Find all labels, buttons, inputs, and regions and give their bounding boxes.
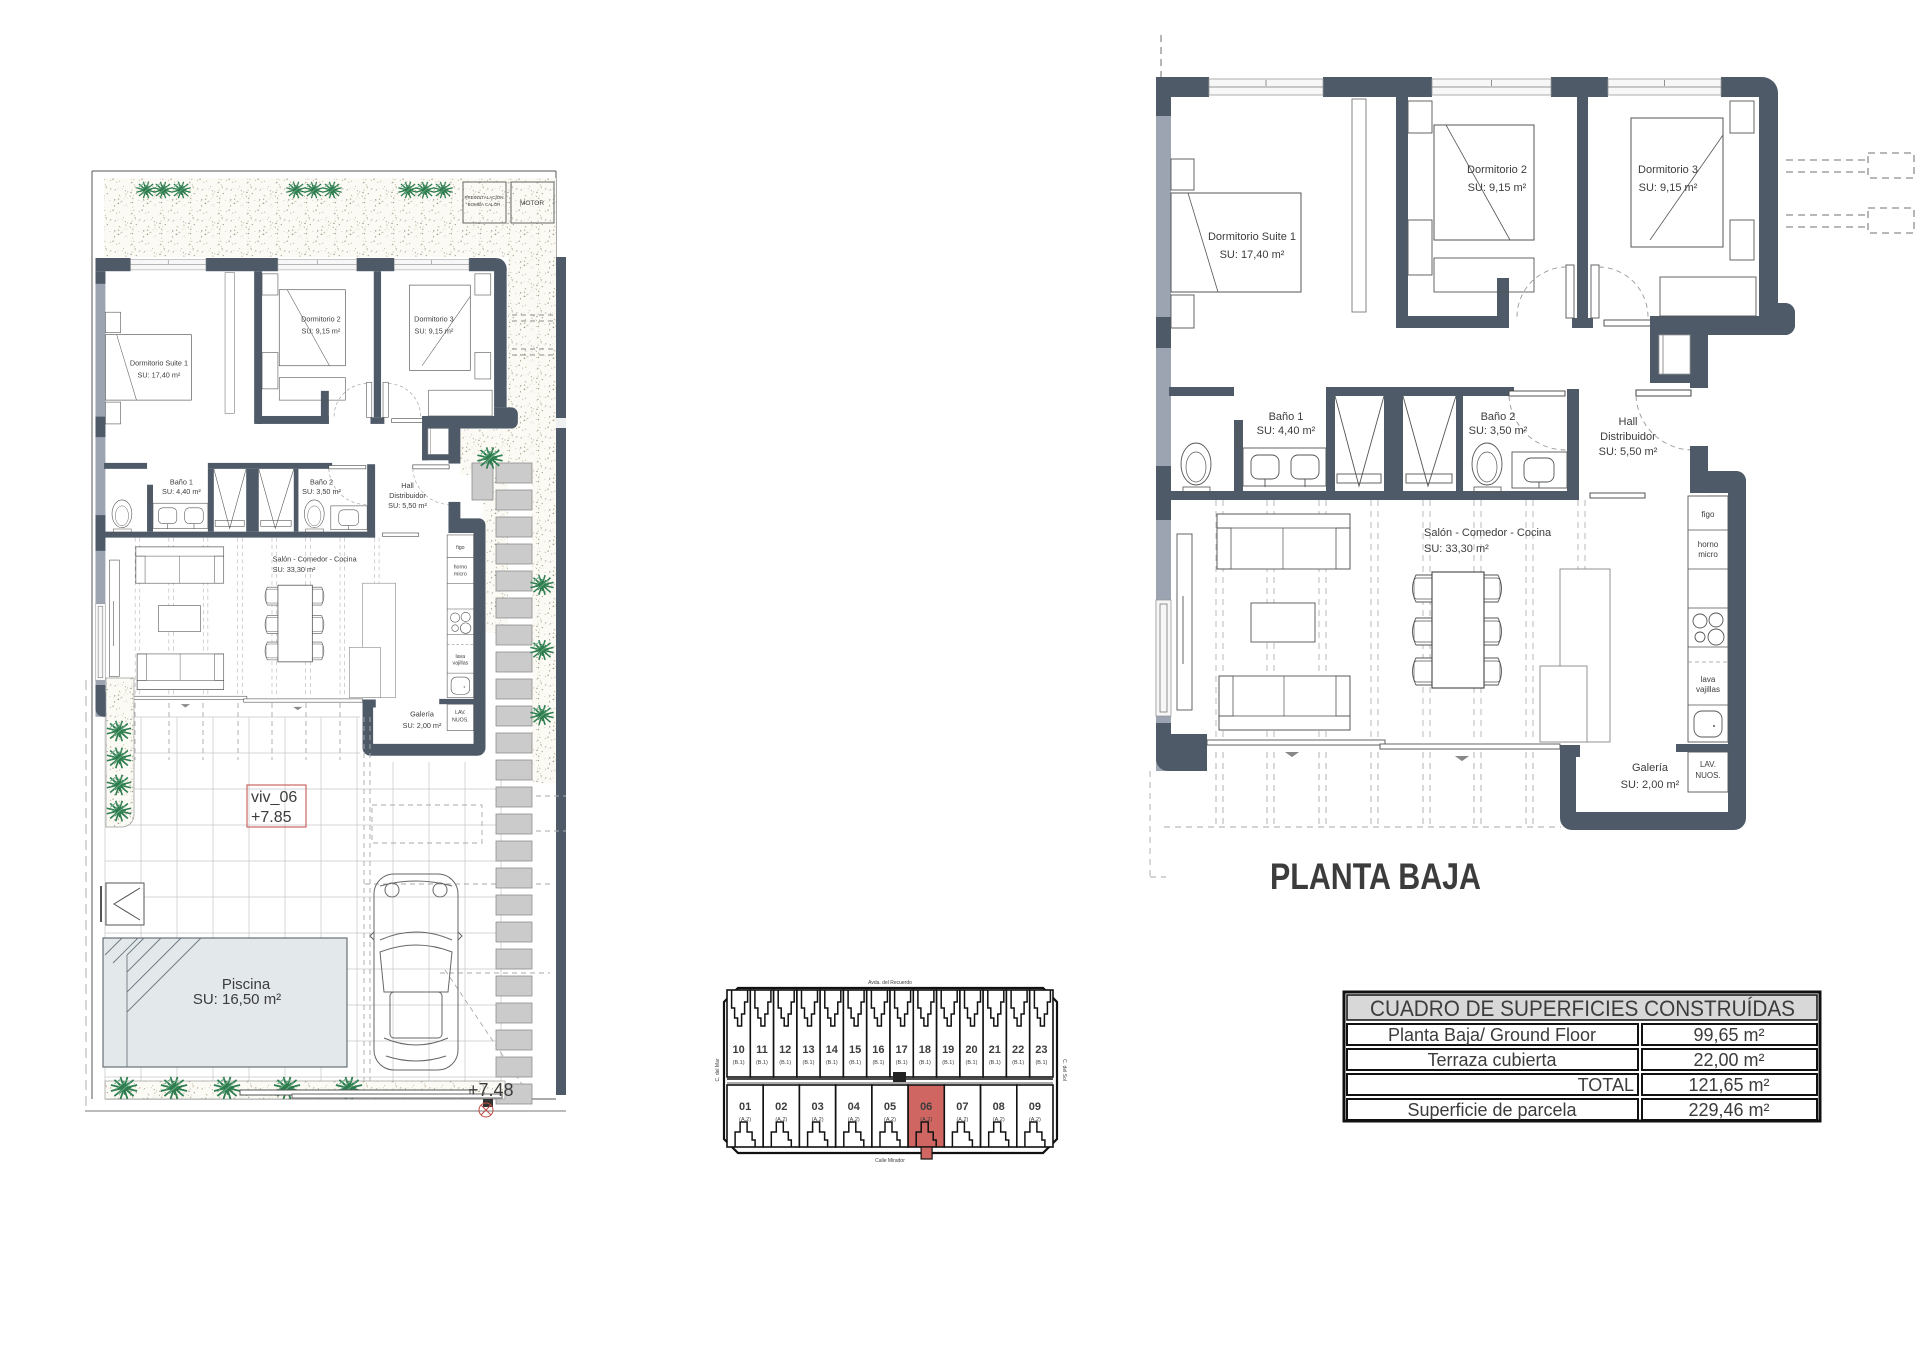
svg-text:10: 10 bbox=[732, 1044, 744, 1056]
svg-text:(B.1): (B.1) bbox=[779, 1060, 791, 1066]
svg-text:(B.1): (B.1) bbox=[756, 1060, 768, 1066]
svg-text:(B.1): (B.1) bbox=[803, 1060, 815, 1066]
svg-text:03: 03 bbox=[811, 1101, 823, 1113]
svg-text:15: 15 bbox=[849, 1044, 861, 1056]
svg-text:(B.1): (B.1) bbox=[849, 1060, 861, 1066]
svg-text:12: 12 bbox=[779, 1044, 791, 1056]
svg-text:SU: 16,50 m²: SU: 16,50 m² bbox=[193, 991, 281, 1008]
svg-text:PLANTA BAJA: PLANTA BAJA bbox=[1270, 856, 1481, 897]
svg-text:+7.48: +7.48 bbox=[468, 1080, 514, 1100]
svg-text:02: 02 bbox=[775, 1101, 787, 1113]
svg-text:22,00 m²: 22,00 m² bbox=[1693, 1050, 1764, 1070]
svg-text:MOTOR: MOTOR bbox=[520, 200, 544, 207]
svg-text:05: 05 bbox=[884, 1101, 896, 1113]
svg-text:Avda. del Recuerdo: Avda. del Recuerdo bbox=[868, 980, 912, 986]
svg-text:20: 20 bbox=[965, 1044, 977, 1056]
svg-text:(B.1): (B.1) bbox=[733, 1060, 745, 1066]
svg-text:17: 17 bbox=[895, 1044, 907, 1056]
svg-text:+7.85: +7.85 bbox=[251, 809, 292, 826]
svg-text:01: 01 bbox=[739, 1101, 751, 1113]
svg-text:21: 21 bbox=[989, 1044, 1001, 1056]
svg-text:(B.1): (B.1) bbox=[1012, 1060, 1024, 1066]
svg-text:11: 11 bbox=[756, 1044, 768, 1056]
svg-text:C. del Sol: C. del Sol bbox=[1061, 1059, 1067, 1081]
svg-text:viv_06: viv_06 bbox=[251, 789, 297, 806]
svg-text:(A.2): (A.2) bbox=[812, 1117, 824, 1123]
svg-text:PREINSTALACIÓN: PREINSTALACIÓN bbox=[465, 194, 504, 200]
svg-text:(A.2): (A.2) bbox=[775, 1117, 787, 1123]
svg-text:(B.1): (B.1) bbox=[919, 1060, 931, 1066]
svg-text:(B.1): (B.1) bbox=[966, 1060, 978, 1066]
svg-text:(B.1): (B.1) bbox=[896, 1060, 908, 1066]
svg-text:(A.2): (A.2) bbox=[993, 1117, 1005, 1123]
svg-text:121,65 m²: 121,65 m² bbox=[1688, 1075, 1769, 1095]
svg-text:Terraza cubierta: Terraza cubierta bbox=[1427, 1050, 1557, 1070]
svg-text:Calle Mirador: Calle Mirador bbox=[875, 1158, 905, 1164]
svg-text:16: 16 bbox=[872, 1044, 884, 1056]
svg-text:(A.2): (A.2) bbox=[848, 1117, 860, 1123]
svg-text:(B.1): (B.1) bbox=[942, 1060, 954, 1066]
svg-text:Superficie de parcela: Superficie de parcela bbox=[1407, 1100, 1577, 1120]
svg-text:C. del Mar: C. del Mar bbox=[715, 1058, 721, 1081]
svg-text:(A.2): (A.2) bbox=[1029, 1117, 1041, 1123]
svg-text:(A.2): (A.2) bbox=[920, 1117, 932, 1123]
svg-text:BOMBA CALOR: BOMBA CALOR bbox=[468, 202, 502, 207]
svg-text:229,46 m²: 229,46 m² bbox=[1688, 1100, 1769, 1120]
svg-text:(A.2): (A.2) bbox=[739, 1117, 751, 1123]
svg-text:04: 04 bbox=[848, 1101, 861, 1113]
svg-text:18: 18 bbox=[919, 1044, 931, 1056]
svg-text:19: 19 bbox=[942, 1044, 954, 1056]
svg-text:07: 07 bbox=[956, 1101, 968, 1113]
svg-text:(A.2): (A.2) bbox=[956, 1117, 968, 1123]
svg-text:TOTAL: TOTAL bbox=[1578, 1075, 1634, 1095]
svg-text:(B.1): (B.1) bbox=[872, 1060, 884, 1066]
svg-text:Planta Baja/ Ground Floor: Planta Baja/ Ground Floor bbox=[1388, 1025, 1596, 1045]
svg-text:06: 06 bbox=[920, 1101, 932, 1113]
svg-text:09: 09 bbox=[1029, 1101, 1041, 1113]
svg-text:13: 13 bbox=[802, 1044, 814, 1056]
svg-text:(B.1): (B.1) bbox=[826, 1060, 838, 1066]
svg-text:CUADRO DE SUPERFICIES CONSTRUÍ: CUADRO DE SUPERFICIES CONSTRUÍDAS bbox=[1370, 996, 1795, 1021]
svg-text:(A.2): (A.2) bbox=[884, 1117, 896, 1123]
svg-text:22: 22 bbox=[1012, 1044, 1024, 1056]
svg-text:99,65 m²: 99,65 m² bbox=[1693, 1025, 1764, 1045]
svg-text:08: 08 bbox=[993, 1101, 1005, 1113]
svg-text:(B.1): (B.1) bbox=[989, 1060, 1001, 1066]
svg-text:14: 14 bbox=[826, 1044, 839, 1056]
svg-text:(B.1): (B.1) bbox=[1035, 1060, 1047, 1066]
svg-text:23: 23 bbox=[1035, 1044, 1047, 1056]
